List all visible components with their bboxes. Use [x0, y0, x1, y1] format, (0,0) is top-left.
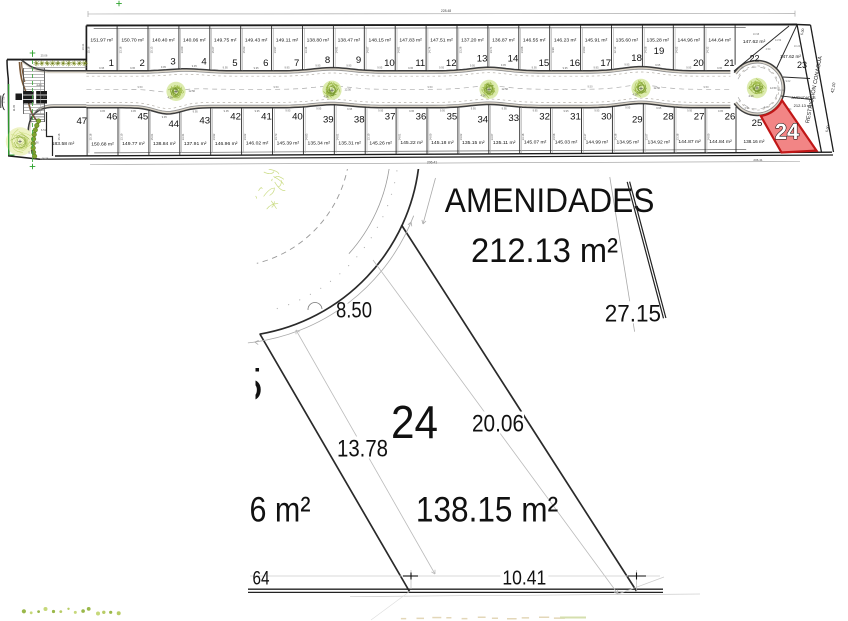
- svg-text:9.95: 9.95: [563, 66, 569, 70]
- svg-text:144.84 m²: 144.84 m²: [709, 139, 732, 144]
- svg-text:9.95: 9.95: [377, 66, 383, 70]
- svg-text:38: 38: [354, 115, 365, 126]
- svg-text:12: 12: [446, 58, 457, 69]
- svg-text:144.96 m²: 144.96 m²: [678, 38, 701, 43]
- svg-text:12.50: 12.50: [502, 87, 509, 91]
- svg-text:19: 19: [654, 46, 665, 57]
- svg-text:35: 35: [447, 112, 458, 123]
- svg-text:25.06: 25.06: [41, 54, 48, 58]
- svg-text:31: 31: [570, 112, 581, 123]
- svg-text:137.91 m²: 137.91 m²: [184, 141, 207, 146]
- svg-text:206.41: 206.41: [753, 158, 763, 162]
- svg-text:15.07: 15.07: [211, 46, 215, 53]
- svg-text:9.95: 9.95: [409, 109, 415, 113]
- svg-text:2.36: 2.36: [33, 141, 39, 145]
- svg-text:4.26: 4.26: [748, 94, 754, 98]
- svg-text:144.99 m²: 144.99 m²: [586, 140, 609, 145]
- svg-text:4.26: 4.26: [167, 96, 173, 100]
- svg-text:14.00: 14.00: [706, 133, 710, 140]
- svg-text:21: 21: [724, 58, 735, 69]
- svg-text:9.95: 9.95: [254, 66, 260, 70]
- svg-text:9.95: 9.95: [502, 107, 508, 111]
- svg-text:14.59: 14.59: [775, 39, 782, 42]
- svg-text:14.02: 14.02: [459, 133, 463, 140]
- svg-text:9.95: 9.95: [161, 65, 167, 69]
- svg-text:13.78: 13.78: [337, 436, 388, 463]
- svg-text:28: 28: [663, 112, 674, 123]
- svg-text:9.95: 9.95: [625, 106, 631, 110]
- svg-text:10: 10: [384, 58, 395, 69]
- svg-text:14.02: 14.02: [243, 133, 247, 140]
- svg-text:12.50: 12.50: [770, 86, 777, 90]
- svg-text:6: 6: [263, 58, 268, 69]
- svg-text:10.41: 10.41: [502, 568, 546, 590]
- svg-text:14.58: 14.58: [644, 46, 648, 53]
- svg-text:13.16: 13.16: [521, 133, 525, 140]
- svg-text:26: 26: [725, 112, 736, 123]
- svg-text:41: 41: [261, 112, 272, 123]
- svg-text:43: 43: [199, 116, 210, 127]
- svg-text:183.58 m²: 183.58 m²: [52, 141, 75, 146]
- svg-text:138.84 m²: 138.84 m²: [153, 141, 176, 146]
- svg-text:14.01: 14.01: [397, 133, 401, 140]
- svg-text:145.07 m²: 145.07 m²: [524, 140, 547, 145]
- svg-text:14.83: 14.83: [305, 133, 309, 140]
- svg-text:13: 13: [477, 54, 488, 65]
- svg-text:9.95: 9.95: [470, 64, 476, 68]
- svg-text:24: 24: [775, 119, 800, 144]
- svg-text:14.63: 14.63: [582, 46, 586, 53]
- svg-text:134.95 m²: 134.95 m²: [617, 139, 640, 144]
- svg-text:212.13 m²: 212.13 m²: [471, 232, 618, 270]
- svg-text:20: 20: [693, 58, 704, 69]
- svg-text:4.26: 4.26: [323, 95, 329, 99]
- svg-text:4.26: 4.26: [480, 94, 486, 98]
- svg-text:10.31: 10.31: [81, 43, 85, 50]
- svg-text:13.07: 13.07: [490, 133, 494, 140]
- svg-text:150.70 m²: 150.70 m²: [121, 38, 144, 43]
- svg-text:15: 15: [539, 58, 550, 69]
- svg-text:15.16: 15.16: [57, 133, 61, 140]
- svg-text:9.95: 9.95: [255, 109, 261, 113]
- svg-text:30: 30: [601, 112, 612, 123]
- svg-text:9.95: 9.95: [501, 63, 507, 67]
- svg-text:14.01: 14.01: [336, 133, 340, 140]
- svg-text:15.16: 15.16: [87, 46, 91, 53]
- svg-text:138.80 m²: 138.80 m²: [307, 38, 330, 43]
- svg-text:9.95: 9.95: [532, 66, 538, 70]
- svg-text:9.50: 9.50: [587, 85, 593, 89]
- svg-text:7: 7: [294, 58, 299, 69]
- svg-text:40: 40: [292, 112, 303, 123]
- svg-text:146.02 m²: 146.02 m²: [246, 141, 269, 146]
- svg-text:47: 47: [76, 116, 87, 127]
- svg-text:15.01: 15.01: [150, 133, 154, 140]
- svg-text:149.77 m²: 149.77 m²: [122, 141, 145, 146]
- svg-text:13.38: 13.38: [676, 133, 680, 140]
- svg-text:9.95: 9.95: [346, 64, 352, 68]
- svg-text:9.98: 9.98: [551, 47, 555, 53]
- svg-text:9.95: 9.95: [408, 66, 414, 70]
- svg-text:4.26: 4.26: [632, 93, 638, 97]
- svg-text:145.18 m²: 145.18 m²: [431, 140, 454, 145]
- svg-text:148.15 m²: 148.15 m²: [369, 38, 392, 43]
- svg-text:9.50: 9.50: [427, 85, 433, 89]
- svg-text:145.03 m²: 145.03 m²: [555, 140, 578, 145]
- svg-text:14.36: 14.36: [614, 133, 618, 140]
- svg-text:9.95: 9.95: [718, 109, 724, 113]
- svg-text:5.75: 5.75: [28, 151, 34, 155]
- svg-text:228.48: 228.48: [441, 9, 451, 13]
- svg-text:146.55 m²: 146.55 m²: [523, 38, 546, 43]
- svg-text:M-05: M-05: [12, 104, 16, 111]
- svg-text:9.95: 9.95: [285, 109, 291, 113]
- svg-text:9.95: 9.95: [624, 63, 630, 67]
- svg-text:9: 9: [356, 55, 361, 66]
- svg-text:8.50: 8.50: [336, 298, 372, 323]
- svg-text:147.62 m²: 147.62 m²: [743, 39, 766, 44]
- svg-text:12.12: 12.12: [613, 46, 617, 53]
- svg-text:17.06: 17.06: [2, 96, 6, 103]
- svg-text:4.26: 4.26: [764, 106, 769, 109]
- svg-text:144.87 m²: 144.87 m²: [678, 139, 701, 144]
- svg-text:27.15: 27.15: [605, 300, 661, 327]
- svg-text:9.95: 9.95: [130, 66, 136, 70]
- svg-text:16.26: 16.26: [42, 157, 49, 161]
- svg-text:151.97 m²: 151.97 m²: [90, 38, 113, 43]
- svg-text:9.95: 9.95: [687, 109, 693, 113]
- svg-text:36: 36: [416, 112, 427, 123]
- svg-text:9.95: 9.95: [192, 64, 198, 68]
- svg-text:16.52: 16.52: [778, 89, 785, 92]
- svg-text:15.03: 15.03: [242, 46, 246, 53]
- svg-text:64: 64: [253, 569, 270, 590]
- svg-text:9.95: 9.95: [655, 63, 661, 67]
- svg-text:135.15 m²: 135.15 m²: [462, 140, 485, 145]
- svg-text:13.16: 13.16: [118, 46, 122, 53]
- svg-text:136.87 m²: 136.87 m²: [492, 38, 515, 43]
- svg-text:33: 33: [508, 113, 519, 124]
- svg-text:13.44: 13.44: [304, 46, 308, 53]
- svg-text:9.95: 9.95: [717, 66, 723, 70]
- svg-text:42: 42: [230, 112, 241, 123]
- svg-text:138.16 m²: 138.16 m²: [744, 139, 766, 144]
- svg-text:140.40 m²: 140.40 m²: [152, 38, 175, 43]
- svg-text:146.23 m²: 146.23 m²: [554, 38, 577, 43]
- svg-text:9.95: 9.95: [193, 110, 199, 114]
- svg-text:13.10: 13.10: [119, 133, 123, 140]
- svg-text:9.95: 9.95: [316, 107, 322, 111]
- svg-text:150.68 m²: 150.68 m²: [91, 141, 114, 146]
- svg-text:12.50: 12.50: [654, 86, 661, 90]
- svg-text:145.26 m²: 145.26 m²: [369, 140, 392, 145]
- svg-text:10.24: 10.24: [794, 45, 801, 48]
- svg-text:9.95: 9.95: [594, 109, 600, 113]
- svg-text:9.50: 9.50: [137, 85, 143, 89]
- svg-text:9.95: 9.95: [563, 109, 569, 113]
- svg-text:9.95: 9.95: [131, 109, 137, 113]
- svg-text:9.95: 9.95: [315, 63, 321, 67]
- svg-text:9.95: 9.95: [440, 109, 446, 113]
- svg-text:206.41: 206.41: [427, 161, 437, 165]
- svg-text:6.95: 6.95: [745, 107, 750, 110]
- svg-text:14.37: 14.37: [583, 133, 587, 140]
- svg-text:140.06 m²: 140.06 m²: [183, 38, 206, 43]
- svg-text:9.50: 9.50: [273, 85, 279, 89]
- svg-text:8: 8: [325, 55, 330, 66]
- svg-text:9.95: 9.95: [686, 66, 692, 70]
- svg-text:9.95: 9.95: [162, 115, 168, 119]
- svg-text:34: 34: [477, 115, 488, 126]
- svg-text:147.83 m²: 147.83 m²: [399, 38, 422, 43]
- svg-text:AMENIDADES: AMENIDADES: [445, 182, 655, 220]
- svg-text:14.58: 14.58: [552, 133, 556, 140]
- svg-text:13.41: 13.41: [181, 133, 185, 140]
- svg-text:9.02: 9.02: [786, 80, 791, 83]
- svg-text:13.60: 13.60: [180, 46, 184, 53]
- svg-text:147.62 m²: 147.62 m²: [780, 54, 802, 59]
- svg-text:147.51 m²: 147.51 m²: [430, 38, 453, 43]
- svg-text:9.95: 9.95: [471, 107, 477, 111]
- svg-text:137.20 m²: 137.20 m²: [461, 38, 484, 43]
- svg-text:13.26: 13.26: [458, 46, 462, 53]
- svg-text:145.39 m²: 145.39 m²: [277, 141, 300, 146]
- svg-text:4: 4: [201, 57, 207, 68]
- svg-text:14.73: 14.73: [274, 133, 278, 140]
- svg-text:29: 29: [632, 115, 643, 126]
- svg-text:135.34 m²: 135.34 m²: [308, 141, 331, 146]
- svg-text:5: 5: [232, 58, 237, 69]
- svg-text:13.10: 13.10: [367, 133, 371, 140]
- svg-text:14.92: 14.92: [212, 133, 216, 140]
- svg-text:135.31 m²: 135.31 m²: [338, 140, 361, 145]
- svg-text:27: 27: [694, 112, 705, 123]
- svg-text:2.50: 2.50: [766, 48, 771, 51]
- svg-text:9.95: 9.95: [223, 66, 229, 70]
- svg-text:14: 14: [508, 54, 519, 65]
- svg-text:16: 16: [569, 58, 580, 69]
- svg-text:17: 17: [600, 58, 611, 69]
- svg-text:14.97: 14.97: [273, 46, 277, 53]
- svg-text:14.66: 14.66: [520, 46, 524, 53]
- svg-text:3: 3: [170, 57, 175, 68]
- svg-text:9.95: 9.95: [99, 66, 105, 70]
- svg-text:1: 1: [109, 58, 114, 69]
- svg-text:13.07: 13.07: [645, 133, 649, 140]
- svg-text:37: 37: [385, 112, 396, 123]
- svg-text:149.75 m²: 149.75 m²: [214, 38, 237, 43]
- svg-text:22: 22: [749, 54, 759, 64]
- svg-text:14.00: 14.00: [428, 133, 432, 140]
- svg-text:24: 24: [391, 396, 438, 448]
- svg-text:9.95: 9.95: [656, 106, 662, 110]
- svg-text:11: 11: [415, 58, 425, 69]
- svg-text:6.51: 6.51: [41, 128, 47, 132]
- svg-text:144.64 m²: 144.64 m²: [708, 38, 731, 43]
- svg-text:18: 18: [631, 53, 642, 64]
- svg-text:135.28 m²: 135.28 m²: [647, 38, 670, 43]
- svg-text:32: 32: [539, 112, 550, 123]
- svg-text:135.11 m²: 135.11 m²: [493, 140, 516, 145]
- svg-text:14.81: 14.81: [397, 46, 401, 53]
- svg-text:9.50: 9.50: [703, 85, 709, 89]
- svg-text:14.71: 14.71: [489, 46, 493, 53]
- svg-text:9.95: 9.95: [378, 109, 384, 113]
- svg-text:4.26: 4.26: [36, 83, 42, 87]
- svg-text:9.95: 9.95: [224, 109, 230, 113]
- svg-text:145.91 m²: 145.91 m²: [585, 38, 608, 43]
- svg-text:10.98: 10.98: [753, 33, 760, 36]
- svg-text:9.95: 9.95: [439, 66, 445, 70]
- svg-text:9.95: 9.95: [593, 66, 599, 70]
- svg-text:15.13: 15.13: [149, 46, 153, 53]
- svg-text:14.87: 14.87: [366, 46, 370, 53]
- svg-text:138.47 m²: 138.47 m²: [338, 38, 361, 43]
- svg-text:44: 44: [168, 119, 179, 130]
- svg-text:39: 39: [323, 115, 334, 126]
- svg-text:45: 45: [138, 112, 149, 123]
- svg-text:9.95: 9.95: [347, 107, 353, 111]
- svg-text:46: 46: [107, 112, 118, 123]
- svg-text:4.26: 4.26: [739, 67, 744, 70]
- svg-text:15.16: 15.16: [88, 133, 92, 140]
- svg-text:4.26: 4.26: [36, 108, 42, 112]
- svg-text:145.22 m²: 145.22 m²: [400, 140, 423, 145]
- svg-text:149.11 m²: 149.11 m²: [276, 38, 299, 43]
- svg-text:25: 25: [752, 118, 763, 129]
- svg-text:9.95: 9.95: [284, 66, 290, 70]
- svg-text:14.74: 14.74: [427, 46, 431, 53]
- svg-text:9.95: 9.95: [100, 109, 106, 113]
- svg-text:134.92 m²: 134.92 m²: [648, 139, 671, 144]
- svg-text:14.91: 14.91: [335, 46, 339, 53]
- svg-text:2: 2: [140, 58, 145, 69]
- svg-text:6 m²: 6 m²: [250, 489, 311, 529]
- svg-text:138.15 m²: 138.15 m²: [416, 489, 558, 529]
- svg-text:20.06: 20.06: [472, 411, 524, 438]
- svg-text:146.96 m²: 146.96 m²: [215, 141, 238, 146]
- svg-text:9.95: 9.95: [533, 109, 539, 113]
- svg-text:12.50: 12.50: [189, 89, 196, 93]
- svg-text:149.43 m²: 149.43 m²: [245, 38, 268, 43]
- svg-text:14.32: 14.32: [706, 46, 710, 53]
- svg-text:12.50: 12.50: [345, 88, 352, 92]
- svg-text:135.60 m²: 135.60 m²: [616, 38, 639, 43]
- svg-text:14.52: 14.52: [675, 46, 679, 53]
